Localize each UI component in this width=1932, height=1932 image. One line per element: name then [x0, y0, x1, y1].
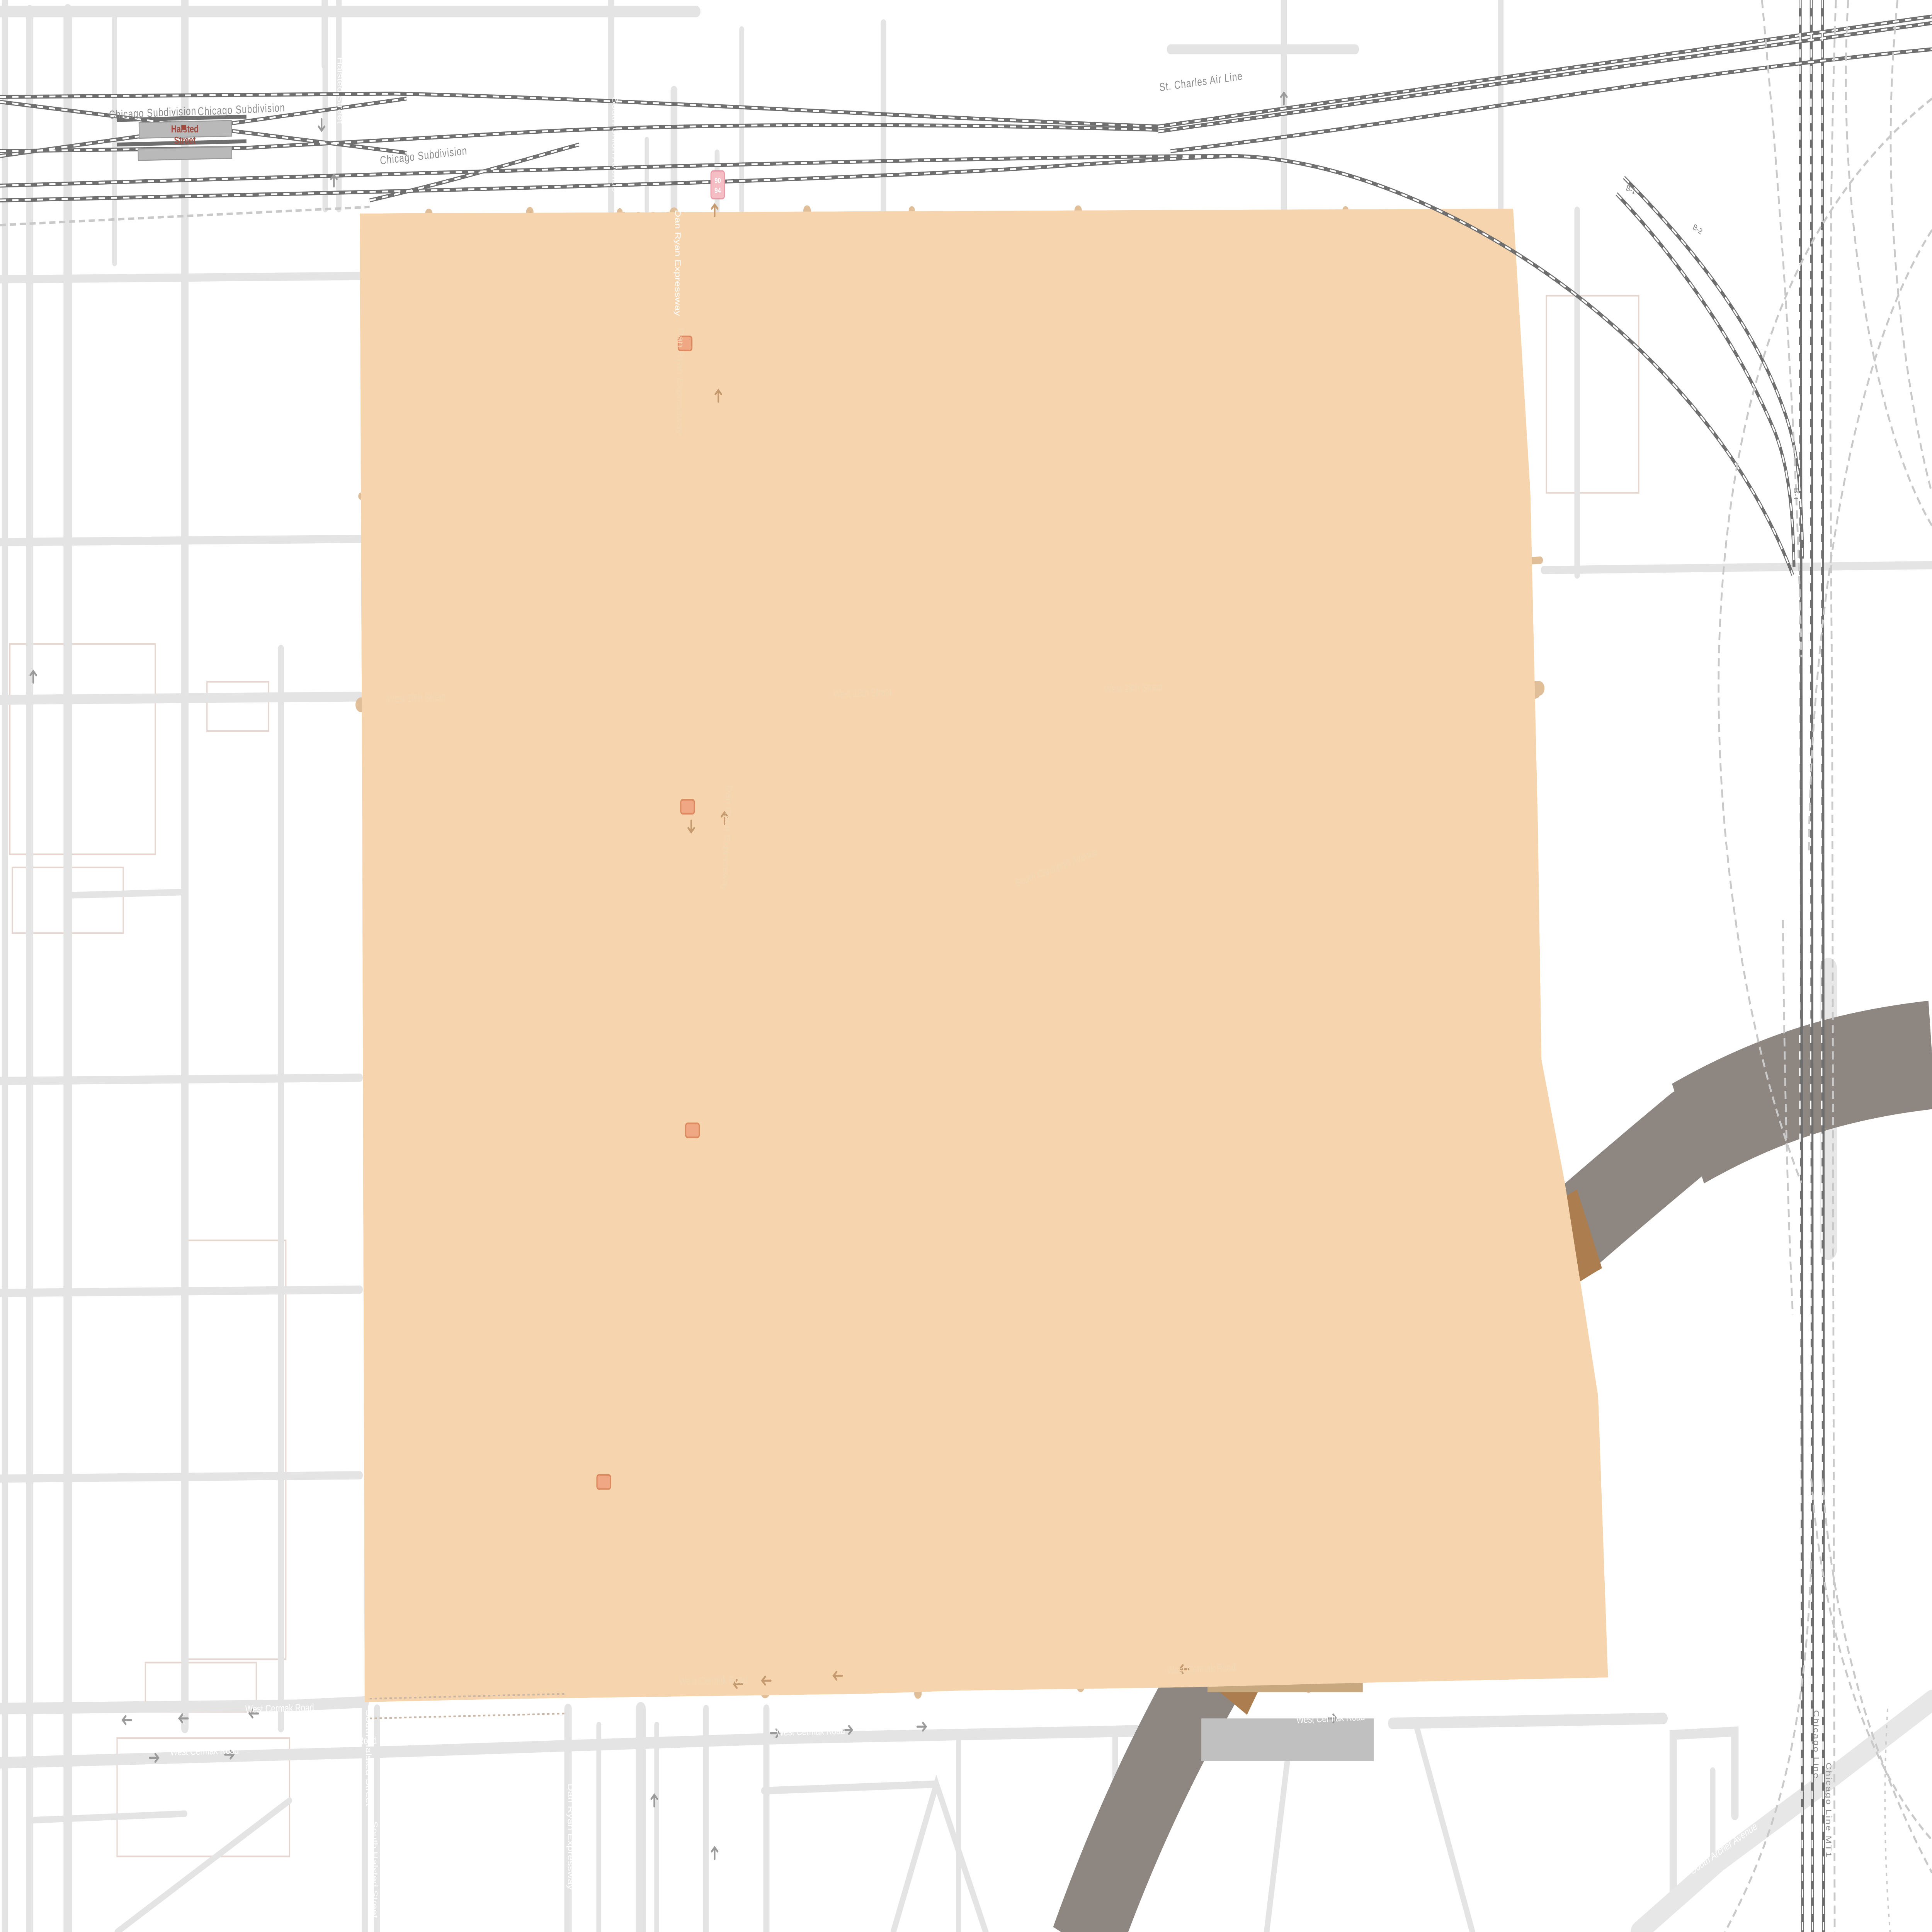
station-name-label: Halsted: [171, 123, 199, 134]
route-shield: 9094: [711, 171, 724, 199]
railway-label: B-2: [1692, 222, 1703, 236]
railway-label: St. Charles Air Line: [1159, 69, 1243, 94]
railway-label: Chicago Subdivision: [379, 144, 468, 167]
street-name-label: South Halsted Street: [370, 1821, 379, 1918]
railway-label: Chicago Line: [1812, 1710, 1820, 1779]
oneway-arrow-icon: [331, 175, 337, 187]
oneway-arrow-icon: [917, 1723, 926, 1730]
railway-label: Chicago Subdivision: [197, 101, 285, 118]
shield-number-bottom: 94: [714, 186, 721, 195]
street-name-label: Dan Ryan Expressway: [566, 1784, 575, 1890]
map-canvas[interactable]: 9094 Chicago SubdivisionChicago Subdivis…: [0, 0, 1932, 1932]
district-border: [360, 209, 1608, 1702]
transit-station-marker[interactable]: [681, 800, 694, 814]
street-name-label: South Halsted Street: [364, 1709, 373, 1806]
street-name-label: West 18th Street: [1104, 682, 1163, 696]
street-name-label: West 18th Street: [833, 686, 892, 700]
street-name-label: West 18th Street: [387, 691, 446, 705]
oneway-arrow-icon: [712, 1847, 718, 1859]
oneway-arrow-icon: [122, 1716, 131, 1724]
street-name-label: Dan Ryan Expressway: [673, 210, 682, 316]
street-name-label: West Cermak Road: [679, 1674, 748, 1687]
street-name-label: West Cermak Road: [776, 1725, 845, 1738]
district-polygon[interactable]: [360, 209, 1608, 1761]
station-name-label: Street: [174, 134, 196, 146]
transit-station-marker[interactable]: [597, 1475, 611, 1489]
street-name-label: West Cermak Road: [170, 1745, 239, 1758]
shield-number-top: 90: [714, 176, 721, 185]
transit-station-marker[interactable]: [686, 1123, 699, 1137]
street-name-label: Halsted Street: [336, 57, 345, 124]
railway-label: Chicago Line MT1: [1825, 1763, 1833, 1859]
railway-label: B-1: [1625, 183, 1636, 196]
railway-label: B-T: [1793, 488, 1799, 502]
street-name-label: South Union Avenue: [611, 97, 619, 192]
street-name-label: West Cermak Road: [245, 1702, 314, 1715]
street-name-label: Dan Ryan Expressway: [675, 328, 685, 435]
map-svg: 9094 Chicago SubdivisionChicago Subdivis…: [0, 0, 1932, 1932]
